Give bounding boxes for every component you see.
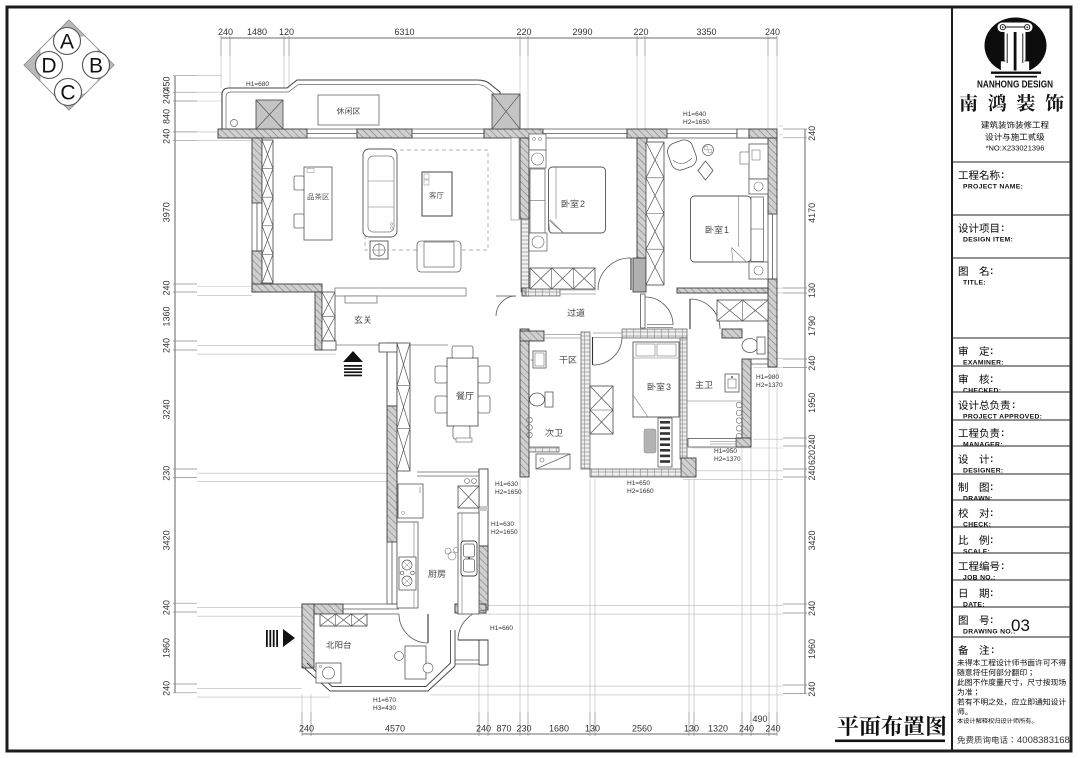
svg-text::: : — [990, 615, 993, 626]
svg-text:PROJECT NAME:: PROJECT NAME: — [963, 184, 1023, 191]
svg-text:1480: 1480 — [247, 27, 267, 37]
svg-text:H3=430: H3=430 — [373, 705, 396, 712]
svg-text:MANAGER:: MANAGER: — [963, 442, 1003, 449]
svg-text:870: 870 — [496, 724, 511, 734]
svg-text:TITLE:: TITLE: — [963, 280, 986, 287]
svg-text:JOB NO.:: JOB NO.: — [963, 575, 996, 582]
svg-text:240: 240 — [765, 27, 780, 37]
svg-text:1320: 1320 — [708, 724, 728, 734]
svg-text:NANHONG DESIGN: NANHONG DESIGN — [977, 79, 1053, 91]
svg-text:H1=640: H1=640 — [683, 111, 706, 118]
svg-text:H1=630: H1=630 — [491, 521, 514, 528]
svg-text:240: 240 — [162, 681, 172, 696]
svg-text:240: 240 — [807, 601, 817, 616]
svg-text:DESIGNER:: DESIGNER: — [963, 468, 1003, 475]
svg-text:230: 230 — [162, 466, 172, 481]
svg-text:PROJECT APPROVED:: PROJECT APPROVED: — [963, 414, 1042, 421]
svg-text:H2=1650: H2=1650 — [495, 489, 522, 496]
svg-text:220: 220 — [633, 27, 648, 37]
svg-text:3: 3 — [666, 382, 671, 392]
svg-text:4570: 4570 — [385, 724, 405, 734]
svg-text:220: 220 — [516, 27, 531, 37]
svg-text:CHECK:: CHECK: — [963, 522, 991, 529]
svg-text:840: 840 — [162, 109, 172, 124]
svg-text:3420: 3420 — [162, 530, 172, 550]
svg-text:2990: 2990 — [572, 27, 592, 37]
svg-text::: : — [990, 535, 993, 546]
svg-text::: : — [990, 346, 993, 357]
svg-text:1790: 1790 — [807, 316, 817, 336]
svg-text:H1=650: H1=650 — [627, 480, 650, 487]
svg-text:H2=1370: H2=1370 — [756, 382, 783, 389]
svg-text:CHECKED:: CHECKED: — [963, 388, 1001, 395]
svg-text:H1=660: H1=660 — [490, 625, 513, 632]
svg-text:6310: 6310 — [394, 27, 414, 37]
svg-text:240: 240 — [739, 724, 754, 734]
svg-text::: : — [1001, 223, 1004, 234]
svg-text:D: D — [41, 55, 56, 78]
svg-text:1950: 1950 — [807, 393, 817, 413]
svg-text:H2=1650: H2=1650 — [491, 529, 518, 536]
svg-text:DRAWN:: DRAWN: — [963, 496, 993, 503]
svg-text:130: 130 — [684, 724, 699, 734]
svg-text:H2=1650: H2=1650 — [683, 119, 710, 126]
svg-text:H2=1660: H2=1660 — [627, 488, 654, 495]
svg-text::: : — [990, 588, 993, 599]
svg-text:2: 2 — [580, 199, 585, 209]
svg-text:240: 240 — [162, 338, 172, 353]
svg-text:120: 120 — [279, 27, 294, 37]
svg-text::: : — [990, 266, 993, 277]
svg-text:240: 240 — [162, 280, 172, 295]
svg-text:A: A — [60, 31, 74, 54]
svg-text:3420: 3420 — [807, 530, 817, 550]
svg-text:240: 240 — [162, 600, 172, 615]
svg-text:1: 1 — [724, 225, 729, 235]
svg-text:130: 130 — [807, 283, 817, 298]
svg-text:4008383168: 4008383168 — [1017, 735, 1070, 746]
svg-text:3350: 3350 — [696, 27, 716, 37]
svg-text::: : — [1001, 561, 1004, 572]
svg-text:240: 240 — [299, 724, 314, 734]
svg-text:SCALE:: SCALE: — [963, 549, 990, 556]
svg-text:3240: 3240 — [162, 399, 172, 419]
svg-text:240: 240 — [162, 89, 172, 104]
svg-text:240: 240 — [807, 356, 817, 371]
svg-text:1680: 1680 — [549, 724, 569, 734]
svg-text:130: 130 — [585, 724, 600, 734]
svg-text::: : — [1001, 170, 1004, 181]
svg-text:240: 240 — [807, 126, 817, 141]
svg-text::: : — [1001, 428, 1004, 439]
svg-text::: : — [991, 645, 994, 656]
svg-text:03: 03 — [1011, 616, 1030, 635]
svg-text:240: 240 — [476, 724, 491, 734]
svg-text:490: 490 — [752, 714, 767, 724]
svg-text:EXAMINER:: EXAMINER: — [963, 360, 1004, 367]
svg-text:2560: 2560 — [632, 724, 652, 734]
svg-text:240: 240 — [807, 465, 817, 480]
svg-text:H1=670: H1=670 — [373, 697, 396, 704]
svg-text:H1=950: H1=950 — [714, 448, 737, 455]
svg-text::: : — [990, 482, 993, 493]
svg-text:240: 240 — [765, 724, 780, 734]
svg-text:H1=630: H1=630 — [495, 481, 518, 488]
svg-text:DRAWING NO.:: DRAWING NO.: — [963, 629, 1016, 636]
svg-text:240: 240 — [807, 434, 817, 449]
svg-text:H1=980: H1=980 — [756, 374, 779, 381]
svg-text:H1=680: H1=680 — [246, 81, 269, 88]
svg-text:1960: 1960 — [807, 639, 817, 659]
svg-text::: : — [990, 508, 993, 519]
svg-text:240: 240 — [807, 682, 817, 697]
svg-text:*NO:X233021396: *NO:X233021396 — [986, 144, 1045, 153]
svg-text:4170: 4170 — [807, 203, 817, 223]
svg-text:H2=1370: H2=1370 — [714, 456, 741, 463]
svg-text:1960: 1960 — [162, 638, 172, 658]
svg-text:620: 620 — [807, 450, 817, 465]
svg-text:DESIGN ITEM:: DESIGN ITEM: — [963, 237, 1013, 244]
svg-text:C: C — [60, 82, 75, 105]
svg-text:1360: 1360 — [162, 306, 172, 326]
svg-text:240: 240 — [162, 129, 172, 144]
svg-text:3970: 3970 — [162, 202, 172, 222]
svg-text::: : — [990, 454, 993, 465]
svg-text:B: B — [89, 55, 103, 78]
svg-text:240: 240 — [218, 27, 233, 37]
svg-text::: : — [990, 374, 993, 385]
svg-text::: : — [1012, 400, 1015, 411]
svg-text:DATE:: DATE: — [963, 602, 985, 609]
svg-text:230: 230 — [516, 724, 531, 734]
